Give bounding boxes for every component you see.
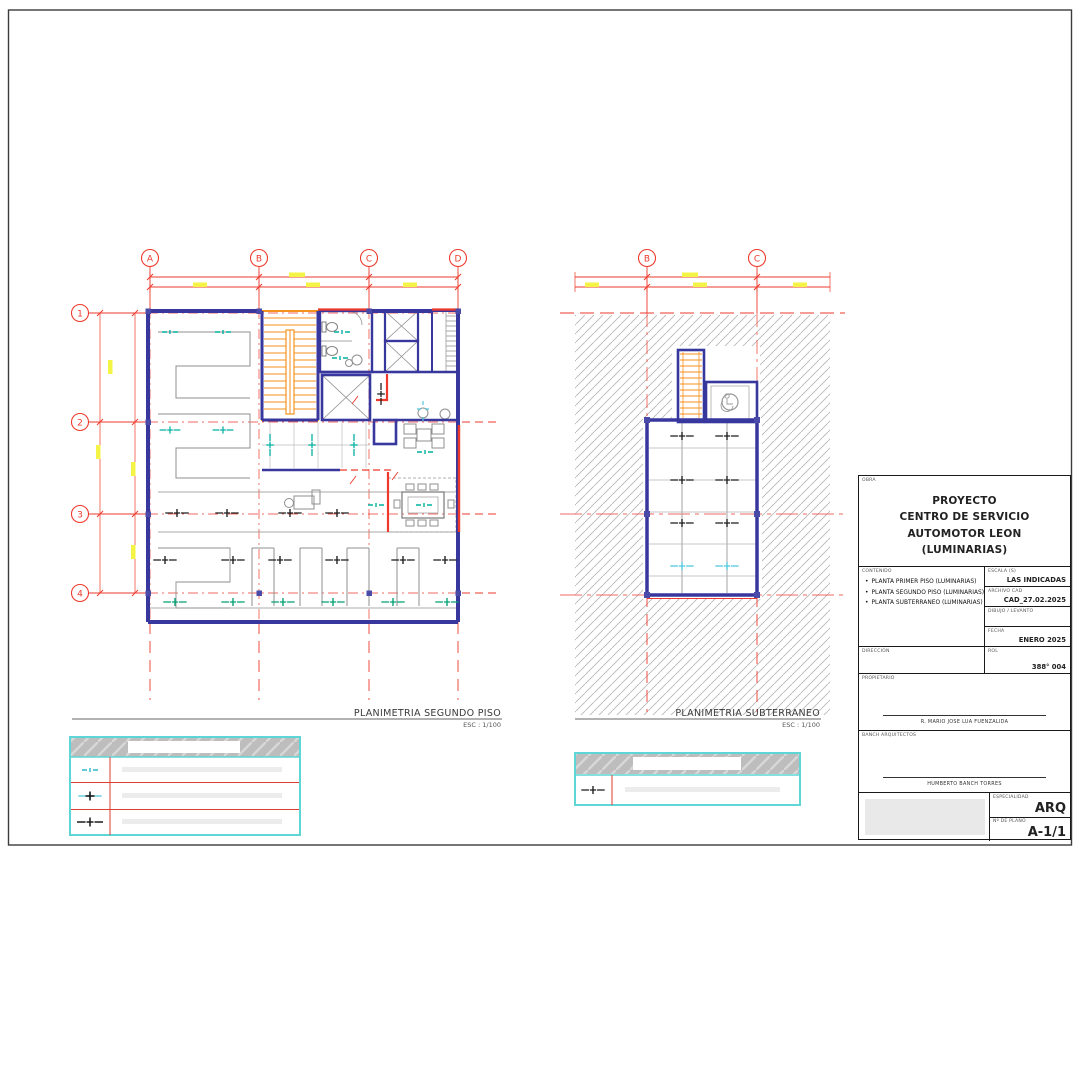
escala-value: LAS INDICADAS [1007, 576, 1066, 584]
grid-bubble-3: 3 [77, 511, 83, 521]
fecha-cell: FECHA ENERO 2025 [985, 627, 1070, 646]
grid-bubble-a: A [147, 255, 154, 265]
rol-value: 388° 004 [1032, 663, 1066, 671]
plan1-scale: ESC : 1/100 [463, 721, 501, 729]
contenido-item: •PLANTA SUBTERRANEO (LUMINARIAS) [865, 598, 984, 609]
arquitecto-name: HUMBERTO BANCH TORRES [859, 781, 1070, 787]
propietario-label: PROPIETARIO [862, 676, 895, 681]
dibujo-cell: DIBUJO / LEVANTO [985, 607, 1070, 627]
title-block-propietario: PROPIETARIO R. MARIO JOSE LUA FUENZALIDA [859, 673, 1070, 730]
plan2-dim-text-marks [585, 273, 807, 288]
escala-cell: ESCALA (S) LAS INDICADAS [985, 567, 1070, 587]
grid-bubble-b: B [256, 255, 262, 265]
grid-bubble-2: 2 [77, 419, 83, 429]
legend-table-1 [70, 737, 300, 835]
plan1-walls [148, 311, 458, 622]
plan2-title: PLANIMETRIA SUBTERRANEO [675, 708, 820, 719]
plan1-interior-gray [150, 311, 458, 608]
especialidad-value: ARQ [1035, 801, 1066, 816]
archivo-value: CAD_27.02.2025 [1004, 596, 1066, 604]
plan2-scale: ESC : 1/100 [782, 721, 820, 729]
fecha-value: ENERO 2025 [1019, 636, 1066, 644]
plan1-stair [262, 311, 318, 420]
title-block-direccion: DIRECCIÓN ROL 388° 004 [859, 646, 1070, 673]
contenido-item: •PLANTA SEGUNDO PISO (LUMINARIAS) [865, 588, 984, 599]
cad-sheet: A B C D 1 2 3 4 [0, 0, 1080, 1080]
title-block-footer: ESPECIALIDAD ARQ Nº DE PLANO A-1/1 [859, 792, 1070, 841]
stamp-box [865, 799, 985, 835]
propietario-name: R. MARIO JOSE LUA FUENZALIDA [859, 719, 1070, 725]
grid-bubble-c2: C [754, 255, 760, 265]
plano-cell: Nº DE PLANO A-1/1 [990, 818, 1070, 842]
archivo-cell: ARCHIVO CAD CAD_27.02.2025 [985, 587, 1070, 607]
obra-label: OBRA [862, 478, 876, 483]
grid-bubble-d: D [455, 255, 462, 265]
plan1-wall-nodes [146, 309, 462, 597]
title-block-arquitectos: BANCH ARQUITECTOS HUMBERTO BANCH TORRES [859, 730, 1070, 792]
plano-value: A-1/1 [1028, 825, 1066, 840]
legend-table-2 [575, 753, 800, 805]
plan1-title-group: PLANIMETRIA SEGUNDO PISO ESC : 1/100 [72, 708, 502, 729]
title-block-contenido: CONTENIDO •PLANTA PRIMER PISO (LUMINARIA… [859, 566, 1070, 646]
direccion-label: DIRECCIÓN [862, 649, 890, 654]
grid-bubble-b2: B [644, 255, 650, 265]
grid-bubble-4: 4 [77, 590, 83, 600]
project-line3: (LUMINARIAS) [859, 542, 1070, 558]
project-line1: PROYECTO [859, 493, 1070, 509]
arquitectos-label: BANCH ARQUITECTOS [862, 733, 916, 738]
signature-line [883, 777, 1046, 778]
project-line2: CENTRO DE SERVICIO AUTOMOTOR LEON [859, 509, 1070, 542]
title-block: OBRA PROYECTO CENTRO DE SERVICIO AUTOMOT… [858, 475, 1071, 840]
contenido-label: CONTENIDO [862, 569, 892, 574]
title-block-obra: OBRA PROYECTO CENTRO DE SERVICIO AUTOMOT… [859, 476, 1070, 566]
plan1-grid-bubbles [72, 250, 467, 602]
grid-bubble-c: C [366, 255, 372, 265]
grid-bubble-1: 1 [77, 310, 83, 320]
signature-line [883, 715, 1046, 716]
plan2-grid-bubbles [639, 250, 766, 267]
especialidad-cell: ESPECIALIDAD ARQ [990, 793, 1070, 818]
rol-cell: ROL 388° 004 [985, 647, 1070, 673]
contenido-item: •PLANTA PRIMER PISO (LUMINARIAS) [865, 577, 984, 588]
plan1-title: PLANIMETRIA SEGUNDO PISO [354, 708, 501, 719]
